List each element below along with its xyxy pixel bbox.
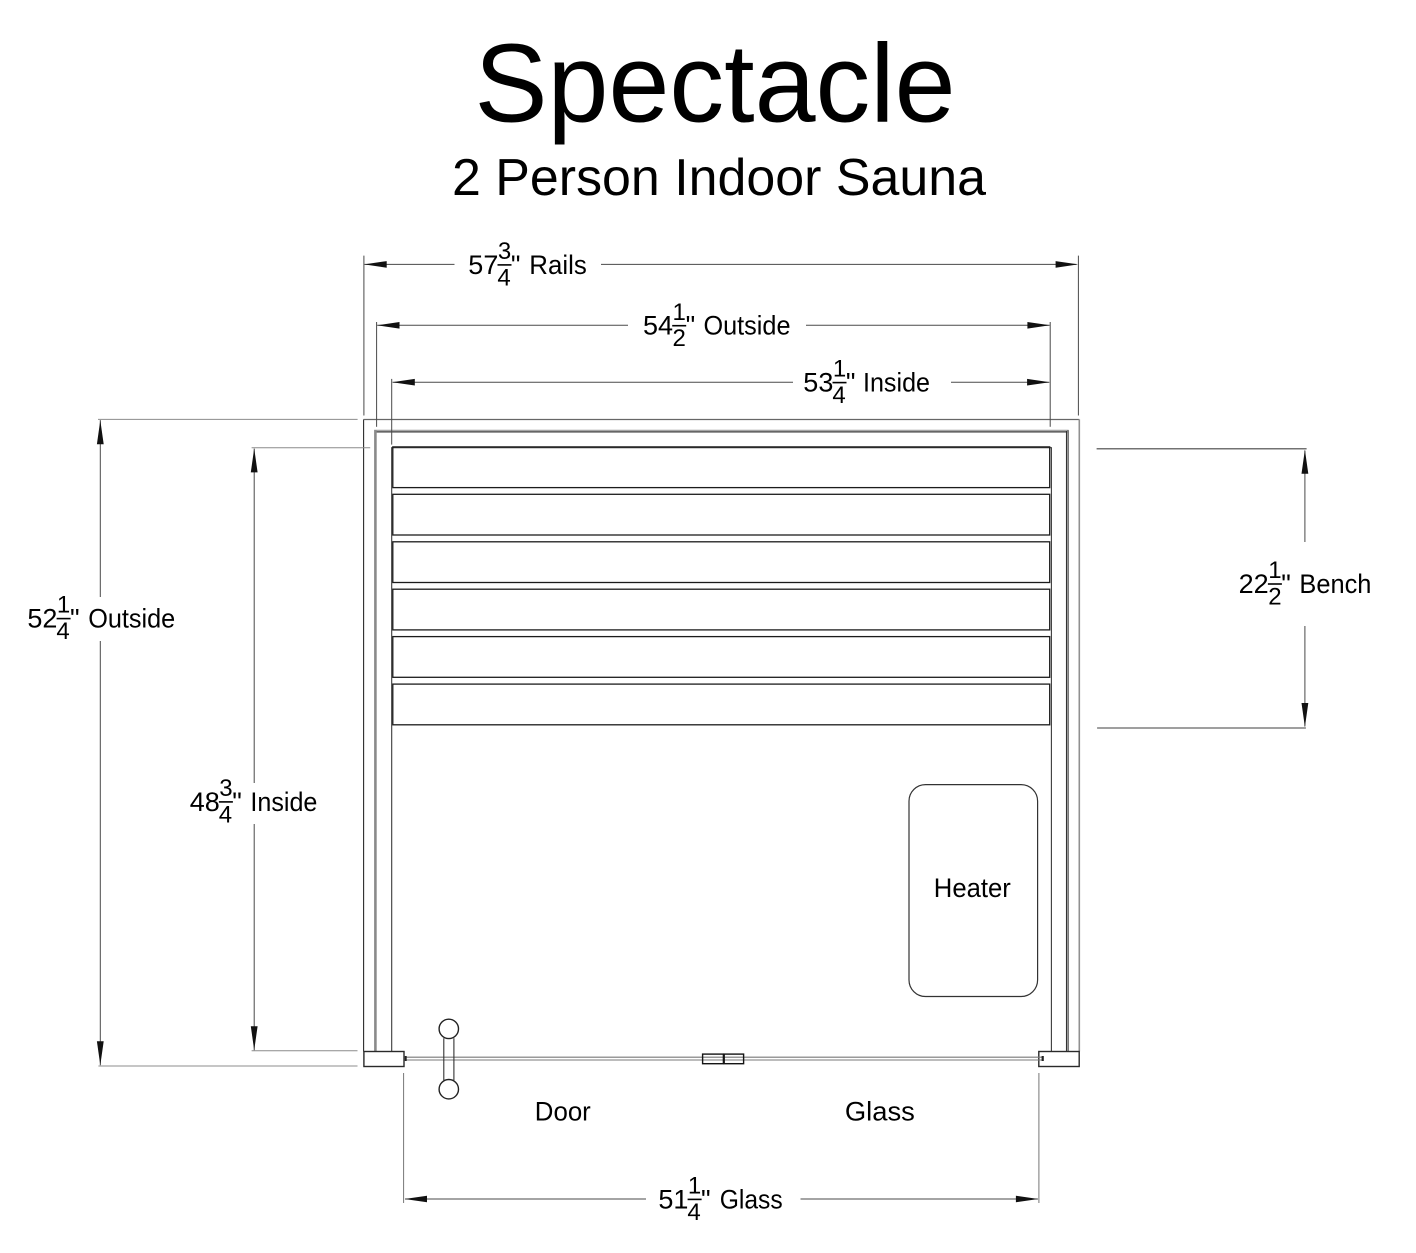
svg-text:": " [1281,569,1291,599]
svg-text:Door: Door [535,1097,591,1127]
svg-text:Rails: Rails [529,250,587,280]
svg-text:52: 52 [27,604,57,634]
svg-text:4: 4 [219,801,232,828]
svg-text:57: 57 [468,250,498,280]
svg-text:53: 53 [803,368,833,398]
svg-text:Outside: Outside [704,311,791,341]
svg-text:1: 1 [57,592,70,619]
svg-text:Inside: Inside [863,368,930,398]
svg-text:4: 4 [56,618,69,645]
svg-text:Heater: Heater [934,873,1011,903]
svg-text:3: 3 [219,775,232,802]
svg-text:Bench: Bench [1299,569,1371,599]
svg-text:1: 1 [688,1173,701,1200]
svg-text:1: 1 [673,299,686,326]
svg-text:": " [846,368,856,398]
svg-text:4: 4 [832,382,845,409]
svg-text:Glass: Glass [845,1097,915,1127]
svg-text:Outside: Outside [88,604,175,634]
svg-text:": " [232,787,242,817]
svg-text:54: 54 [643,311,673,341]
svg-text:48: 48 [190,787,220,817]
svg-text:Glass: Glass [720,1184,783,1214]
svg-text:": " [70,604,80,634]
svg-text:4: 4 [687,1199,700,1226]
svg-text:1: 1 [1268,557,1281,584]
svg-text:2: 2 [673,325,686,352]
svg-text:4: 4 [497,264,510,291]
svg-text:": " [701,1184,711,1214]
svg-text:1: 1 [833,356,846,383]
svg-text:Spectacle: Spectacle [475,21,956,145]
svg-text:3: 3 [498,238,511,265]
svg-text:": " [511,250,521,280]
svg-text:51: 51 [658,1184,688,1214]
svg-text:22: 22 [1239,569,1269,599]
svg-text:2: 2 [1268,584,1281,611]
svg-text:2 Person Indoor Sauna: 2 Person Indoor Sauna [452,149,987,207]
svg-text:Inside: Inside [250,787,317,817]
svg-text:": " [686,311,696,341]
